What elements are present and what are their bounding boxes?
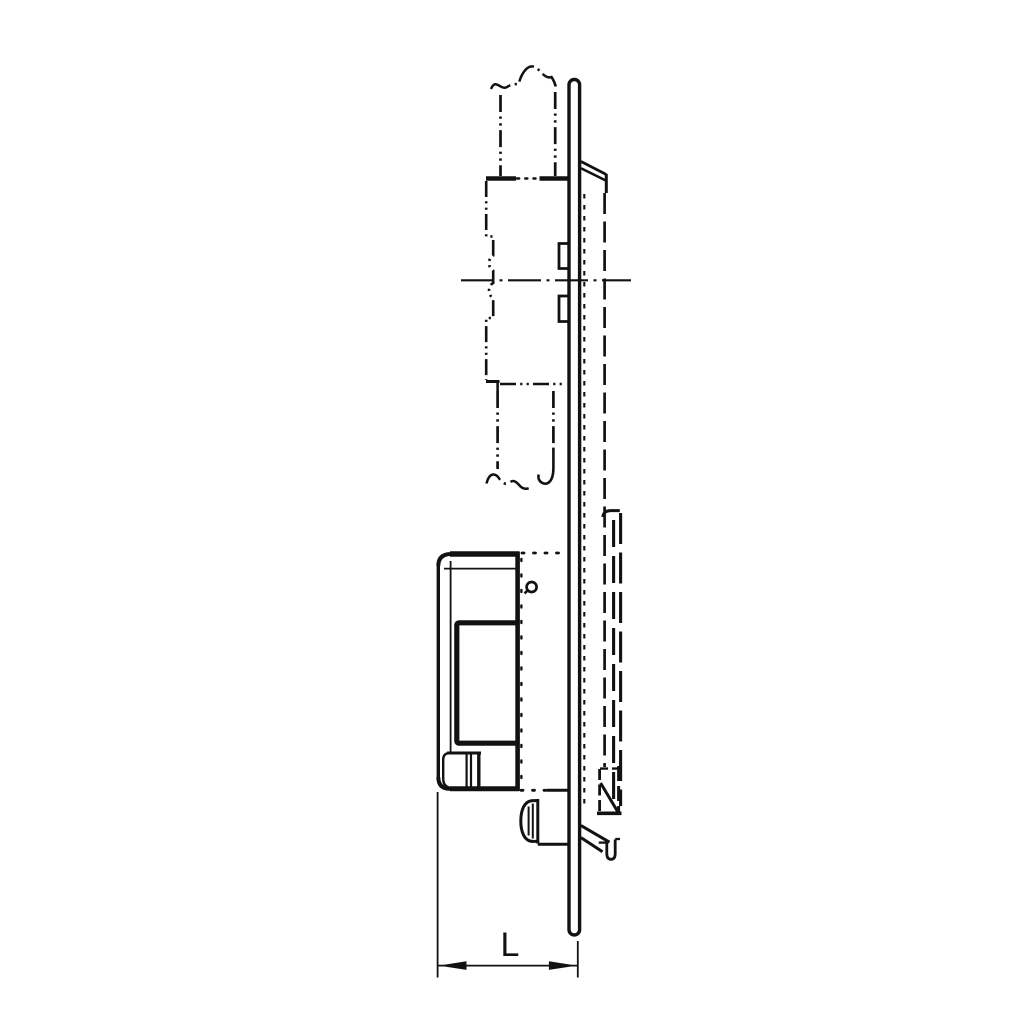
arrowhead-left [439, 961, 467, 970]
front-bar-lower [559, 296, 568, 322]
phantom-profile-box [486, 179, 570, 392]
case-top-left-corner [438, 554, 450, 566]
break-squiggle-bottom [487, 474, 533, 488]
face-plate-edge-profile [569, 80, 580, 936]
phantom-door-profile-upper-tube [491, 66, 556, 176]
strike-keeper [597, 511, 622, 814]
dimension-label: L [501, 926, 520, 964]
arrowhead-right [549, 961, 577, 970]
lock-case [438, 552, 568, 792]
panel-top-chamfer-inner [581, 168, 606, 181]
cylinder-knob [521, 799, 568, 844]
bottom-mounting-tab [581, 826, 620, 860]
front-bar-upper [559, 244, 568, 269]
drawing-canvas: L [0, 0, 1024, 1024]
plate-front-bars [559, 244, 568, 322]
face-plate [569, 80, 580, 936]
technical-drawing: L [0, 0, 1024, 1024]
inner-opening [457, 623, 517, 743]
notch-left-rounded-edge [443, 753, 452, 788]
phantom-door-profile-lower-tube [487, 391, 554, 489]
fixing-screw-tick [525, 591, 528, 594]
lower-tube-j-curl [538, 449, 553, 484]
break-squiggle-top [491, 66, 556, 89]
panel-top-chamfer-outer [581, 162, 606, 175]
brace-diagonal-lower [581, 838, 603, 852]
fixing-screw [527, 582, 537, 592]
dimension-L: L [438, 792, 578, 978]
tab-u-profile [607, 840, 615, 860]
